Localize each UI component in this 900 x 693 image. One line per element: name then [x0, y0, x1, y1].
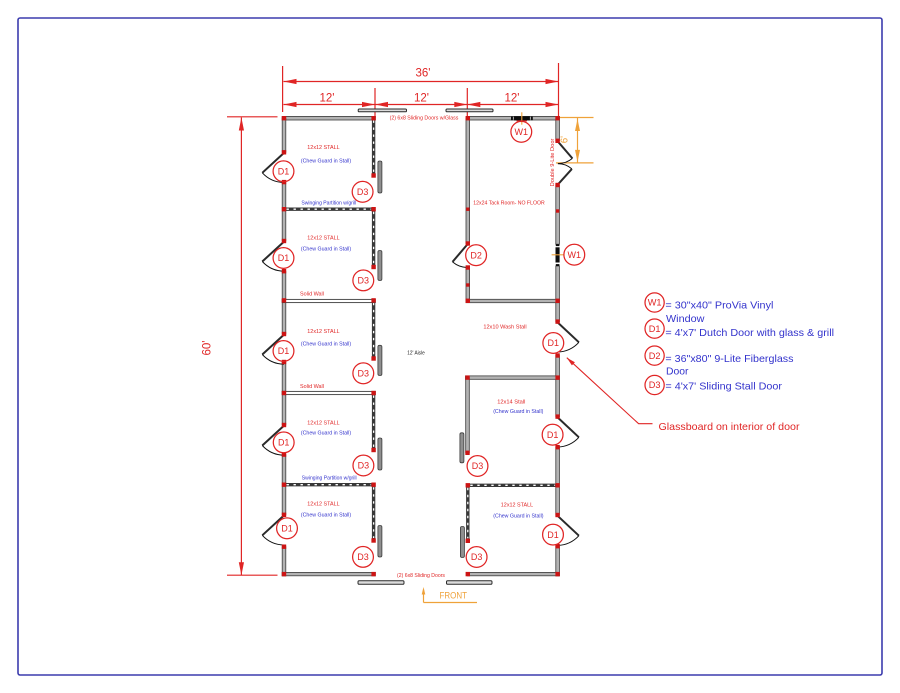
- svg-text:= 36"x80" 9-Lite Fiberglass: = 36"x80" 9-Lite Fiberglass: [665, 353, 793, 365]
- svg-text:FRONT: FRONT: [440, 590, 468, 600]
- svg-text:(Chew Guard in Stall): (Chew Guard in Stall): [301, 342, 351, 348]
- svg-text:12x12 STALL: 12x12 STALL: [307, 420, 340, 426]
- svg-text:12' Aisle: 12' Aisle: [407, 350, 424, 356]
- svg-text:= 4'x7' Dutch Door with glass: = 4'x7' Dutch Door with glass & grill: [665, 327, 834, 339]
- svg-text:W1: W1: [568, 250, 582, 260]
- svg-text:Door: Door: [666, 366, 689, 378]
- svg-text:12x12 STALL: 12x12 STALL: [307, 145, 340, 151]
- svg-text:D3: D3: [358, 276, 370, 286]
- svg-text:(Chew Guard in Stall): (Chew Guard in Stall): [301, 431, 351, 437]
- svg-text:Swinging Partition w/grill: Swinging Partition w/grill: [302, 475, 357, 481]
- svg-text:D3: D3: [357, 552, 369, 562]
- svg-text:(Chew Guard in Stall): (Chew Guard in Stall): [493, 513, 543, 519]
- svg-text:D1: D1: [548, 338, 560, 348]
- svg-text:= 4'x7' Sliding Stall Door: = 4'x7' Sliding Stall Door: [665, 380, 782, 392]
- svg-text:60': 60': [202, 341, 214, 356]
- svg-text:D1: D1: [278, 167, 290, 177]
- svg-text:12x14 Stall: 12x14 Stall: [497, 400, 525, 406]
- svg-text:D3: D3: [358, 461, 370, 471]
- svg-text:D1: D1: [278, 438, 290, 448]
- svg-text:D1: D1: [278, 346, 290, 356]
- svg-text:Solid Wall: Solid Wall: [300, 291, 324, 297]
- svg-text:D3: D3: [472, 461, 484, 471]
- svg-text:D3: D3: [649, 380, 661, 390]
- svg-text:= 30"x40" ProVia Vinyl: = 30"x40" ProVia Vinyl: [665, 299, 773, 311]
- svg-text:12': 12': [414, 93, 429, 105]
- svg-text:12x24 Tack Room- NO FLOOR: 12x24 Tack Room- NO FLOOR: [473, 201, 545, 207]
- svg-text:D2: D2: [470, 250, 482, 260]
- svg-text:D1: D1: [649, 324, 661, 334]
- svg-text:Glassboard on interior of door: Glassboard on interior of door: [659, 421, 800, 433]
- svg-text:D3: D3: [358, 368, 370, 378]
- svg-text:12x12 STALL: 12x12 STALL: [501, 502, 534, 508]
- svg-text:(Chew Guard in Stall): (Chew Guard in Stall): [493, 409, 543, 415]
- svg-text:(2) 6x8 Sliding Doors: (2) 6x8 Sliding Doors: [397, 573, 445, 579]
- svg-text:D2: D2: [649, 351, 661, 361]
- svg-text:Solid Wall: Solid Wall: [300, 384, 324, 390]
- svg-text:12': 12': [320, 93, 335, 105]
- svg-text:12x12 STALL: 12x12 STALL: [307, 502, 340, 508]
- svg-text:12x12 STALL: 12x12 STALL: [307, 329, 340, 335]
- svg-text:12x10 Wash Stall: 12x10 Wash Stall: [483, 325, 526, 331]
- svg-text:(Chew Guard in Stall): (Chew Guard in Stall): [301, 158, 351, 164]
- svg-text:12': 12': [505, 93, 520, 105]
- svg-text:D3: D3: [471, 552, 483, 562]
- svg-text:D3: D3: [357, 187, 369, 197]
- svg-text:D1: D1: [281, 523, 293, 533]
- svg-text:(Chew Guard in Stall): (Chew Guard in Stall): [301, 513, 351, 519]
- svg-text:12x12 STALL: 12x12 STALL: [307, 236, 340, 242]
- svg-text:D1: D1: [278, 253, 290, 263]
- svg-text:(2) 6x8 Sliding Doors w/Glass: (2) 6x8 Sliding Doors w/Glass: [390, 116, 459, 122]
- svg-text:(Chew Guard in Stall): (Chew Guard in Stall): [301, 247, 351, 253]
- svg-text:6': 6': [560, 136, 571, 143]
- svg-text:D1: D1: [547, 430, 559, 440]
- svg-text:D1: D1: [547, 530, 559, 540]
- svg-text:W1: W1: [648, 298, 662, 308]
- svg-text:Window: Window: [666, 313, 705, 325]
- svg-text:Double 9-Lite Door: Double 9-Lite Door: [550, 138, 556, 186]
- svg-text:36': 36': [416, 68, 431, 80]
- svg-text:W1: W1: [515, 127, 529, 137]
- svg-text:Swinging Partition w/grill: Swinging Partition w/grill: [301, 200, 356, 206]
